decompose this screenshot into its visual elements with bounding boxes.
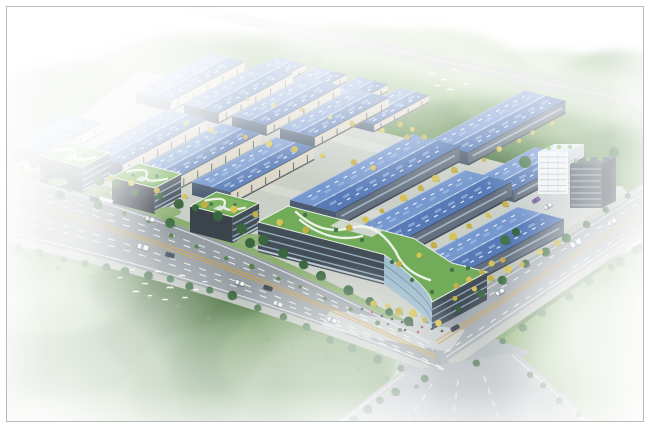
frame-mat (0, 422, 650, 428)
haze-layer (0, 0, 650, 428)
industrial-park-aerial-rendering (0, 0, 650, 428)
framed-aerial-photo (0, 0, 650, 428)
frame-mat (0, 0, 6, 428)
frame-mat (0, 0, 650, 6)
frame-mat (644, 0, 650, 428)
